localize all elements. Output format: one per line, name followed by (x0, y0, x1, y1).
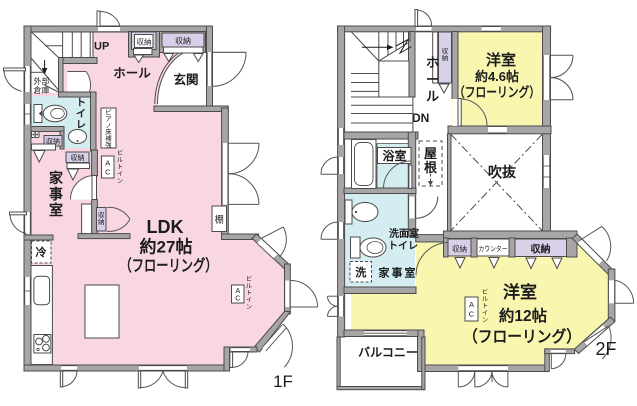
svg-text:ホール: ホール (113, 67, 151, 81)
svg-text:約12帖: 約12帖 (499, 306, 548, 325)
svg-text:バルコニー: バルコニー (358, 346, 418, 360)
svg-text:DN: DN (412, 111, 429, 125)
svg-text:納: 納 (98, 217, 105, 226)
svg-text:ル: ル (482, 296, 488, 303)
svg-text:根: 根 (424, 160, 438, 175)
svg-text:冷: 冷 (36, 245, 47, 259)
svg-text:洋室: 洋室 (486, 51, 516, 69)
svg-text:収納: 収納 (137, 37, 152, 47)
svg-text:（フローリング）: （フローリング） (463, 327, 581, 346)
svg-text:洋室: 洋室 (503, 282, 537, 302)
svg-text:1F: 1F (273, 372, 293, 391)
svg-text:（フローリング）: （フローリング） (120, 256, 218, 275)
svg-text:A: A (469, 300, 474, 309)
svg-text:トイレ: トイレ (388, 240, 418, 252)
svg-text:倉庫: 倉庫 (34, 85, 50, 95)
svg-text:ル: ル (426, 89, 439, 104)
svg-text:家: 家 (49, 170, 64, 186)
svg-text:A: A (235, 288, 240, 295)
svg-text:ト: ト (246, 290, 252, 297)
svg-text:ビ: ビ (246, 275, 252, 283)
svg-text:LDK: LDK (147, 217, 184, 237)
svg-text:収: 収 (98, 211, 105, 219)
svg-text:約4.6帖: 約4.6帖 (475, 69, 519, 84)
svg-text:玄関: 玄関 (173, 72, 198, 87)
svg-text:収納: 収納 (71, 153, 85, 162)
svg-text:A: A (105, 159, 110, 168)
svg-text:納: 納 (442, 53, 449, 62)
svg-text:C: C (235, 296, 240, 303)
svg-text:C: C (105, 168, 111, 177)
svg-text:収納: 収納 (452, 244, 467, 254)
svg-text:室: 室 (49, 202, 63, 218)
svg-text:ル: ル (246, 283, 252, 290)
svg-text:ト: ト (482, 303, 488, 310)
svg-text:カウンター: カウンター (479, 244, 508, 253)
svg-text:収: 収 (442, 47, 449, 55)
svg-text:事: 事 (49, 186, 63, 202)
svg-text:ト: ト (117, 164, 123, 171)
svg-text:イ: イ (482, 310, 488, 317)
svg-text:外部: 外部 (34, 76, 50, 86)
svg-text:イ: イ (76, 108, 86, 120)
svg-text:強: 強 (105, 141, 112, 149)
svg-text:屋: 屋 (424, 146, 437, 161)
svg-text:ー: ー (426, 72, 439, 87)
svg-text:家事室: 家事室 (379, 266, 418, 280)
svg-text:（フローリング）: （フローリング） (454, 84, 540, 100)
svg-text:収納: 収納 (531, 243, 551, 256)
svg-text:イ: イ (117, 171, 123, 178)
svg-text:棚: 棚 (215, 214, 224, 225)
svg-text:UP: UP (94, 41, 109, 53)
svg-text:ト: ト (76, 97, 86, 109)
svg-text:ビ: ビ (117, 149, 123, 157)
svg-text:洗面室: 洗面室 (389, 227, 419, 240)
svg-text:C: C (469, 310, 475, 319)
svg-text:約27帖: 約27帖 (140, 237, 193, 257)
svg-text:吹抜: 吹抜 (488, 164, 517, 180)
svg-text:イ: イ (246, 297, 252, 304)
svg-text:ン: ン (482, 317, 488, 324)
svg-text:収納: 収納 (175, 36, 191, 46)
svg-text:浴室: 浴室 (382, 148, 406, 163)
svg-text:ン: ン (117, 178, 123, 185)
svg-text:ル: ル (117, 157, 123, 164)
svg-text:ホ: ホ (426, 55, 439, 70)
svg-text:ン: ン (246, 304, 252, 311)
svg-text:洗: 洗 (355, 265, 366, 279)
svg-text:ビ: ビ (482, 288, 488, 296)
svg-text:2F: 2F (595, 339, 616, 359)
